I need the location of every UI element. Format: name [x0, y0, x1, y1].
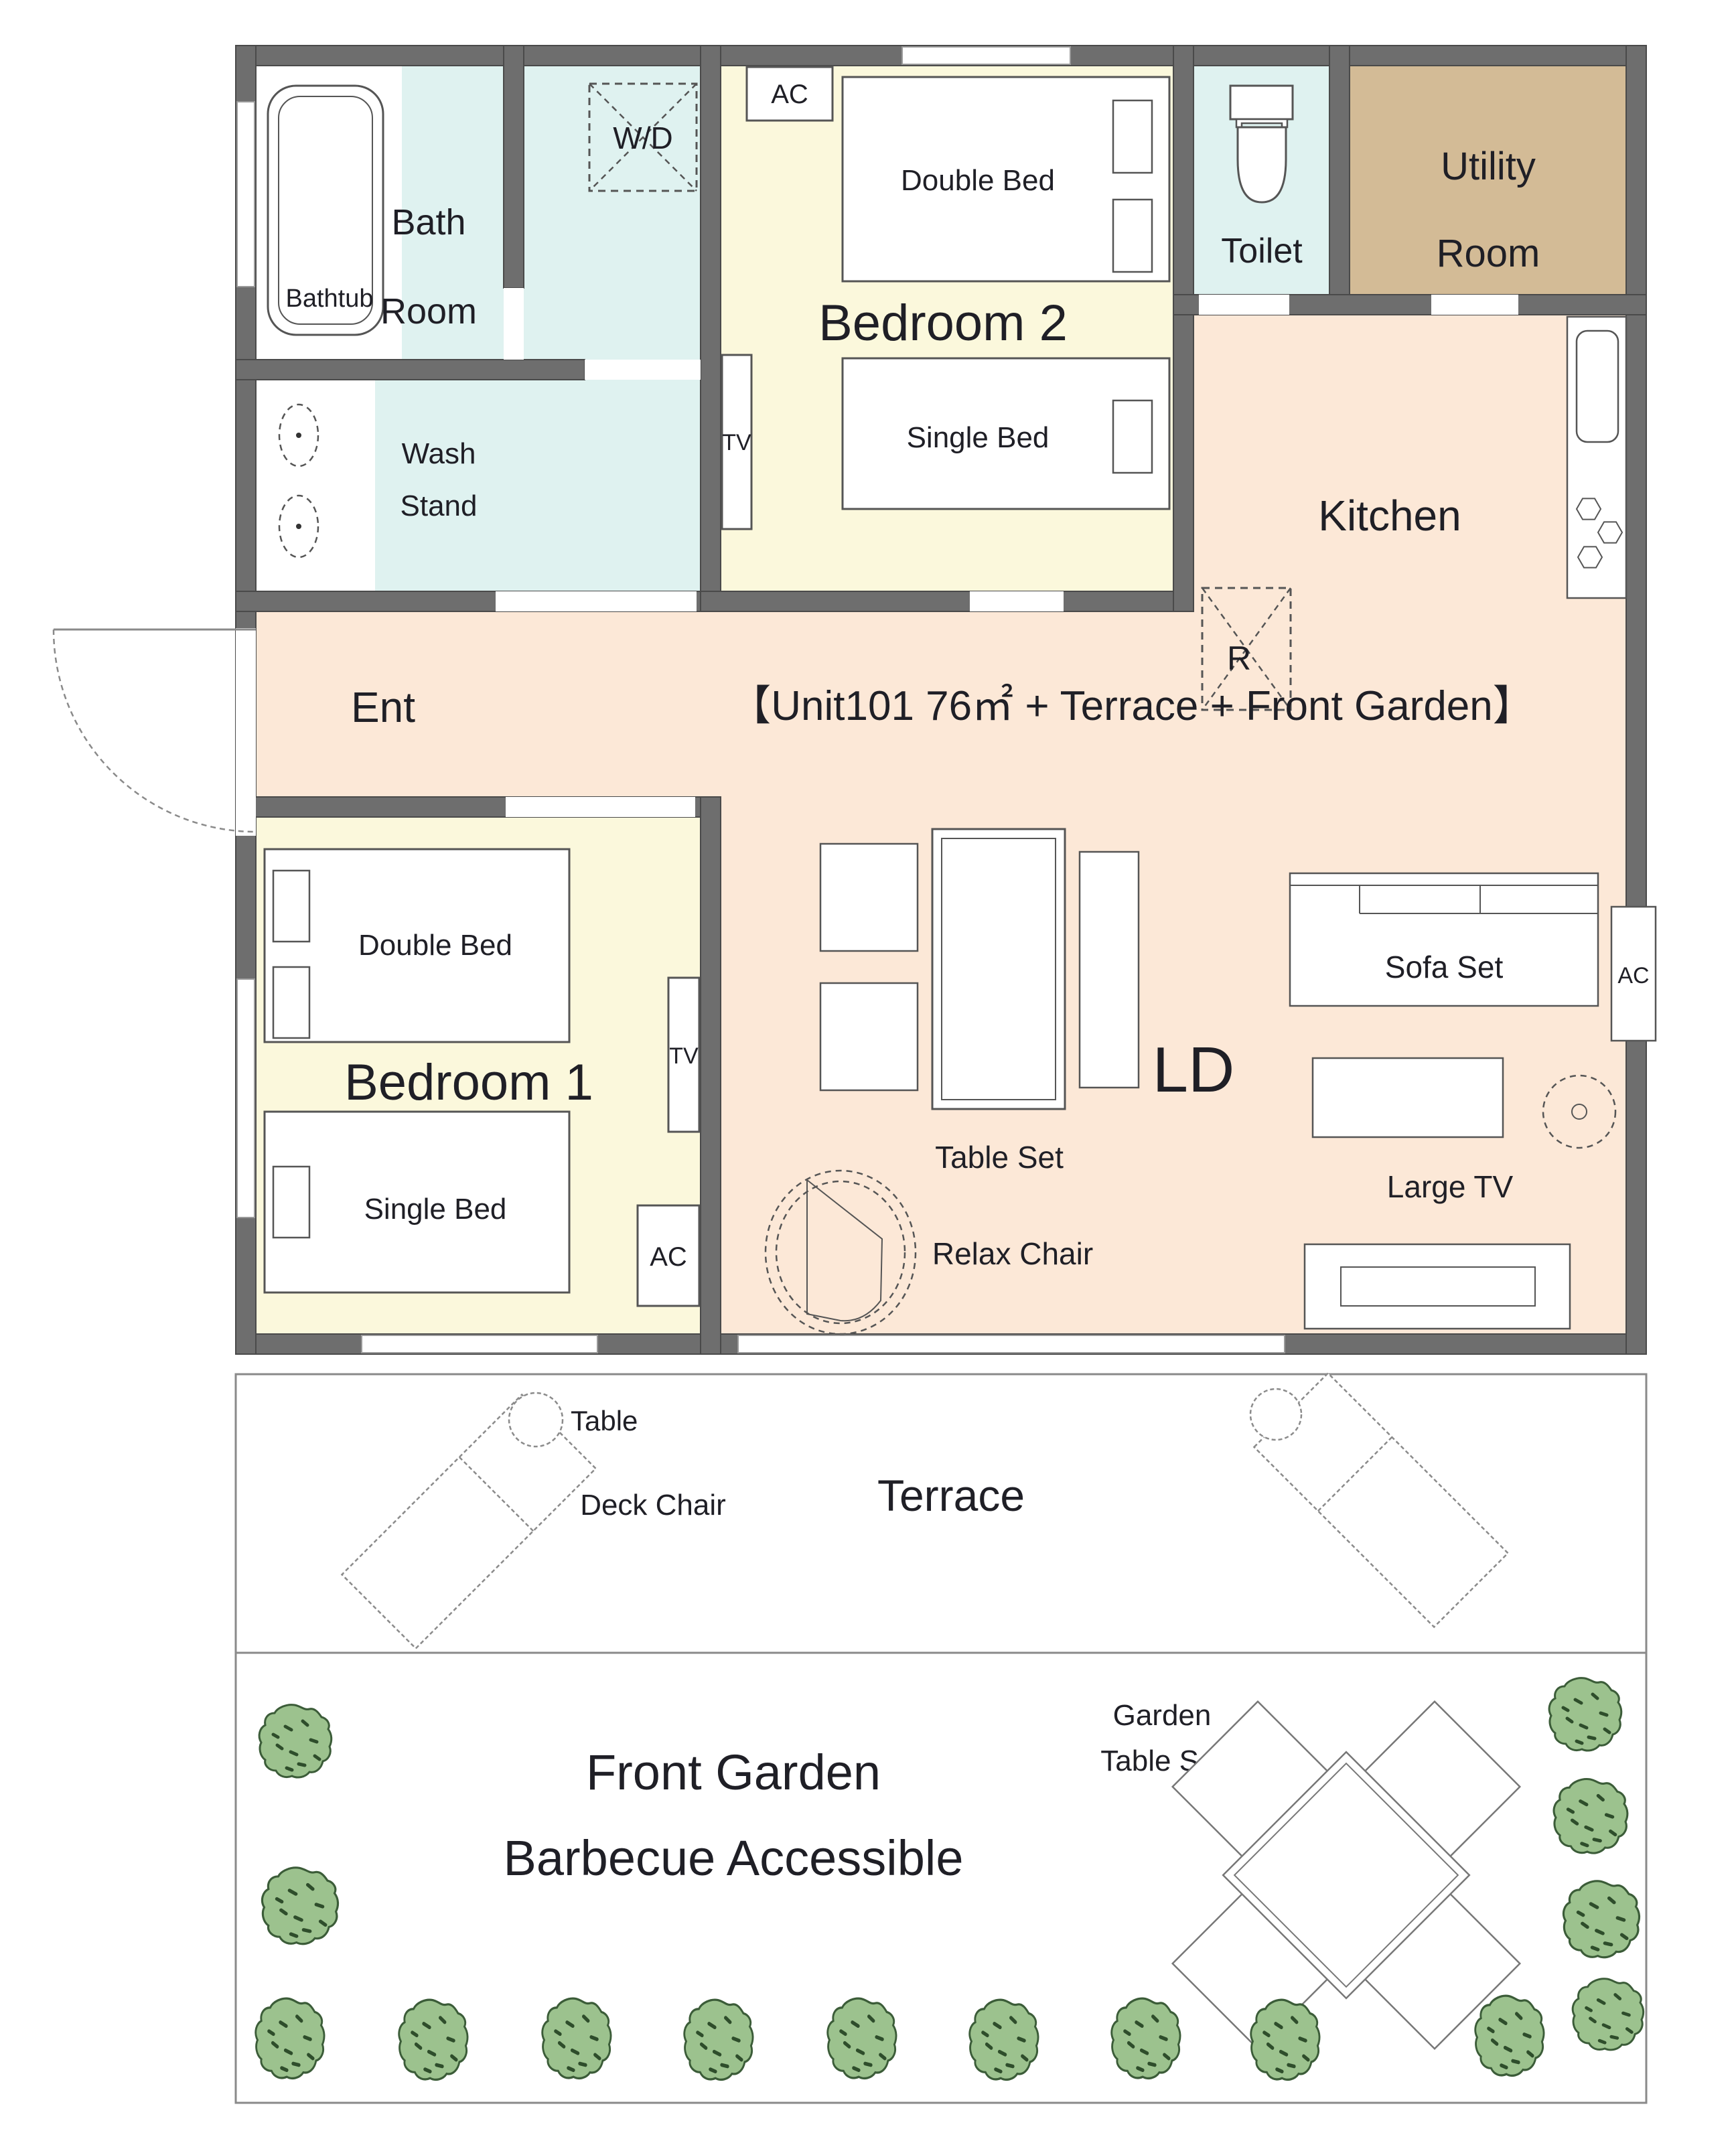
- bedroom2-tv-label: TV: [722, 430, 751, 455]
- living-ac-label: AC: [1617, 963, 1649, 988]
- terrace-door-1: [362, 1335, 597, 1353]
- door-entrance-opening: [236, 628, 256, 836]
- relax-chair-label: Relax Chair: [932, 1236, 1093, 1271]
- door-bedroom1: [506, 797, 695, 817]
- bedroom1-pillow-1: [273, 871, 309, 942]
- sink-zone: [256, 380, 375, 591]
- wall-toilet-utility: [1329, 46, 1350, 315]
- fridge-label: R: [1227, 640, 1251, 677]
- wash-stand-label-2: Stand: [401, 490, 478, 522]
- bedroom2-single-bed-label: Single Bed: [907, 421, 1050, 454]
- bedroom2-ac-label: AC: [771, 80, 808, 109]
- wall-block-bedroom2: [701, 46, 721, 611]
- bedroom1-single-bed-label: Single Bed: [364, 1193, 507, 1226]
- toilet-bowl: [1238, 127, 1286, 202]
- door-bath: [504, 288, 524, 360]
- bedroom2-pillow-2: [1113, 200, 1152, 272]
- wall-bedroom2-ld: [701, 591, 1193, 611]
- door-bedroom2: [970, 591, 1064, 611]
- sink-2-drain: [296, 524, 301, 529]
- entrance-door-swing-arc: [54, 630, 256, 832]
- bedroom2-double-bed-label: Double Bed: [901, 164, 1055, 197]
- terrace-table-right: [1250, 1389, 1301, 1440]
- front-garden: Front Garden Barbecue Accessible Garden …: [236, 1653, 1646, 2103]
- window-bedroom2: [902, 47, 1070, 64]
- bedroom1-pillow-3: [273, 1167, 309, 1238]
- wash-stand-label-1: Wash: [402, 437, 476, 470]
- deck-chair-label: Deck Chair: [580, 1489, 726, 1522]
- wall-bedroom2-kitchen: [1173, 46, 1193, 611]
- front-garden-label: Front Garden: [586, 1745, 881, 1800]
- utility-label-1: Utility: [1441, 145, 1536, 188]
- terrace-label: Terrace: [877, 1471, 1025, 1520]
- dining-bench: [1080, 852, 1139, 1088]
- kitchen-sink: [1577, 331, 1618, 442]
- sink-1-drain: [296, 433, 301, 438]
- door-toilet: [1199, 295, 1289, 315]
- table-set-label: Table Set: [935, 1140, 1064, 1175]
- coffee-table: [1313, 1058, 1503, 1137]
- sofa: [1290, 873, 1598, 1006]
- wall-bath-washer: [504, 46, 524, 288]
- garden-table-set: [1173, 1702, 1520, 2049]
- garden-table-label-1: Garden: [1113, 1699, 1212, 1732]
- window-bedroom1: [237, 979, 255, 1217]
- bathtub-label: Bathtub: [286, 285, 374, 313]
- bedroom1-double-bed-label: Double Bed: [358, 929, 512, 962]
- wall-bath-washstand: [236, 360, 585, 380]
- terrace-table-label: Table: [571, 1405, 638, 1436]
- terrace-door-2: [738, 1335, 1285, 1353]
- door-utility: [1431, 295, 1518, 315]
- large-tv-label: Large TV: [1387, 1169, 1514, 1204]
- bedroom1-label: Bedroom 1: [344, 1054, 593, 1111]
- washer-dryer-label: W/D: [613, 121, 672, 155]
- bath-room-label-1: Bath: [391, 202, 465, 242]
- window-bathroom: [237, 102, 255, 287]
- toilet-tank: [1230, 86, 1293, 119]
- terrace: Table Deck Chair Terrace: [236, 1373, 1646, 1653]
- washer-room-floor: [524, 66, 701, 360]
- bedroom2-pillow-1: [1113, 100, 1152, 173]
- sofa-set-label: Sofa Set: [1385, 950, 1504, 984]
- utility-label-2: Room: [1437, 232, 1540, 275]
- bedroom1-tv-label: TV: [669, 1043, 699, 1069]
- tv-cabinet: [1305, 1244, 1570, 1329]
- ld-label: LD: [1153, 1034, 1235, 1106]
- wall-bedroom1-ld: [701, 797, 721, 1354]
- bedroom2-pillow-3: [1113, 400, 1152, 473]
- entrance-door: [54, 630, 256, 832]
- bath-room-label-2: Room: [380, 291, 477, 331]
- wall-right: [1626, 46, 1646, 1354]
- terrace-table-left: [509, 1393, 563, 1447]
- toilet-label: Toilet: [1221, 232, 1303, 271]
- door-washer-room: [585, 360, 701, 380]
- dining-chair-1: [820, 844, 918, 951]
- barbecue-label: Barbecue Accessible: [504, 1830, 964, 1886]
- unit-title: 【Unit101 76㎡ + Terrace + Front Garden】: [729, 683, 1534, 729]
- bedroom1-pillow-2: [273, 967, 309, 1038]
- kitchen-label: Kitchen: [1318, 492, 1461, 540]
- entrance-label: Ent: [351, 683, 415, 731]
- bedroom1-ac-label: AC: [650, 1242, 687, 1272]
- dining-chair-2: [820, 983, 918, 1090]
- dining-table: [932, 829, 1065, 1109]
- floor-plan: Bath Room Bathtub W/D Wash Stand AC TV D…: [0, 0, 1736, 2143]
- door-washstand: [496, 591, 697, 611]
- bedroom2-label: Bedroom 2: [818, 295, 1068, 352]
